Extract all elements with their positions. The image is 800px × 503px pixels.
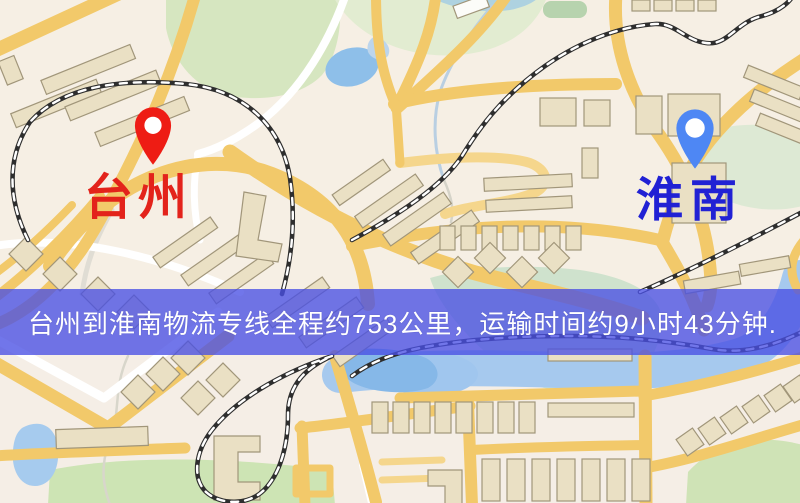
route-info-banner: 台州到淮南物流专线全程约753公里，运输时间约9小时43分钟.	[0, 289, 800, 355]
logistics-map-screenshot: 台州 淮南 台州到淮南物流专线全程约753公里，运输时间约9小时43分钟.	[0, 0, 800, 503]
origin-pin-shape	[135, 107, 171, 164]
origin-pin-hole	[144, 117, 161, 134]
destination-pin[interactable]	[669, 106, 721, 172]
destination-pin-hole	[685, 118, 704, 137]
route-info-text: 台州到淮南物流专线全程约753公里，运输时间约9小时43分钟.	[28, 304, 777, 341]
destination-city-label: 淮南	[636, 176, 744, 223]
origin-city-label: 台州	[84, 174, 192, 223]
origin-pin[interactable]	[127, 104, 179, 168]
destination-pin-shape	[676, 109, 713, 168]
map-canvas	[0, 0, 800, 503]
